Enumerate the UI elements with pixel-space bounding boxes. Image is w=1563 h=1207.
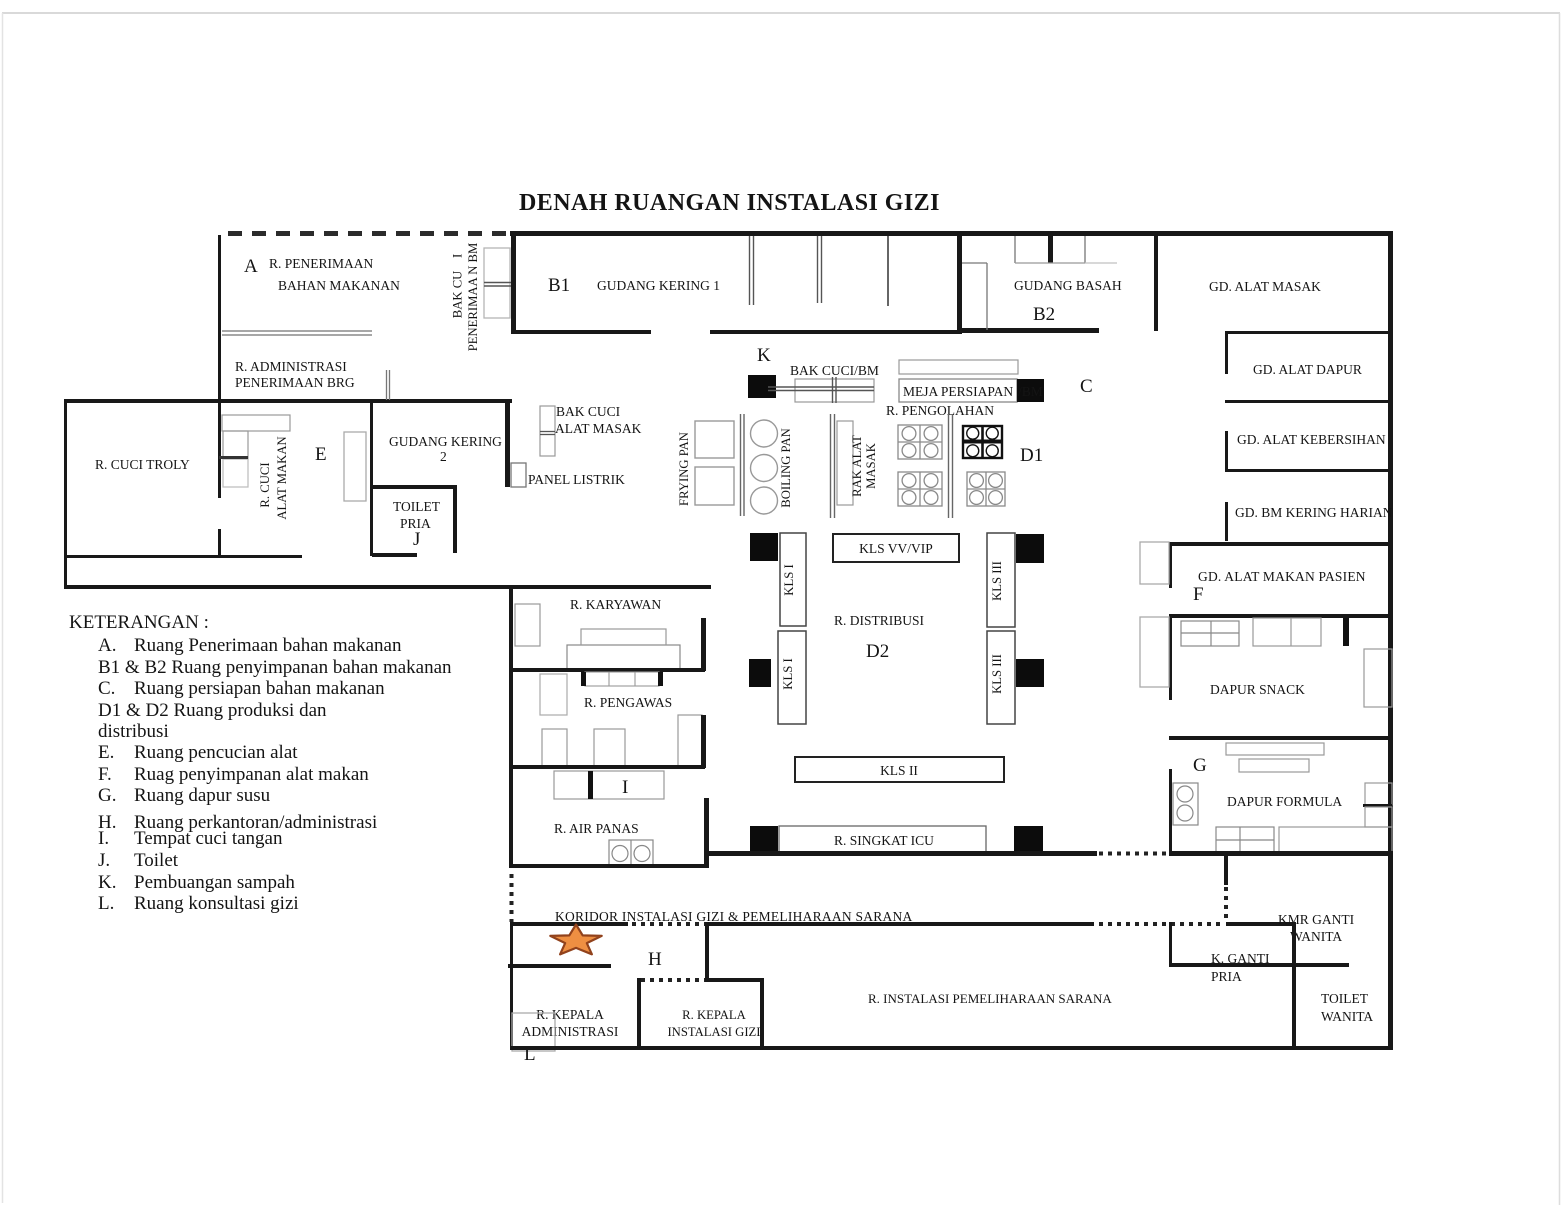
svg-text:WANITA: WANITA	[1321, 1009, 1373, 1024]
svg-text:DAPUR SNACK: DAPUR SNACK	[1210, 682, 1305, 697]
svg-text:D1: D1	[1020, 445, 1043, 466]
svg-text:KLS III: KLS III	[990, 654, 1004, 694]
svg-text:MASAK: MASAK	[864, 442, 878, 489]
svg-text:K.: K.	[98, 872, 116, 893]
svg-text:BAK CUCI/BM: BAK CUCI/BM	[790, 363, 879, 378]
svg-text:GUDANG KERING 1: GUDANG KERING 1	[597, 278, 720, 293]
svg-text:D2: D2	[866, 641, 889, 662]
svg-text:E: E	[315, 444, 327, 465]
svg-text:KMR GANTI: KMR GANTI	[1278, 912, 1355, 927]
svg-text:FRYING PAN: FRYING PAN	[677, 432, 691, 506]
svg-text:Ruang dapur susu: Ruang dapur susu	[134, 785, 271, 806]
svg-text:Ruang pencucian alat: Ruang pencucian alat	[134, 742, 298, 763]
svg-text:K. GANTI: K. GANTI	[1211, 951, 1270, 966]
svg-text:C.: C.	[98, 678, 115, 699]
svg-text:F: F	[1193, 584, 1204, 605]
svg-text:D1 & D2 Ruang produksi dan: D1 & D2 Ruang produksi dan	[98, 700, 327, 721]
svg-text:BOILING PAN: BOILING PAN	[779, 428, 793, 508]
svg-text:BAK CU I: BAK CU I	[451, 254, 465, 319]
svg-text:GD. ALAT KEBERSIHAN: GD. ALAT KEBERSIHAN	[1237, 432, 1386, 447]
svg-text:R. PENERIMAAN: R. PENERIMAAN	[269, 256, 374, 271]
svg-text:Tempat cuci tangan: Tempat cuci tangan	[134, 828, 283, 849]
svg-text:E.: E.	[98, 742, 114, 763]
svg-text:R. SINGKAT ICU: R. SINGKAT ICU	[834, 833, 934, 848]
svg-text:R. KEPALA: R. KEPALA	[536, 1007, 604, 1022]
svg-text:F.: F.	[98, 764, 112, 785]
svg-text:TOILET: TOILET	[393, 499, 441, 514]
svg-text:Ruang Penerimaan bahan makanan: Ruang Penerimaan bahan makanan	[134, 635, 402, 656]
svg-text:KLS VV/VIP: KLS VV/VIP	[859, 541, 933, 556]
svg-text:KETERANGAN :: KETERANGAN :	[69, 612, 209, 633]
svg-text:GUDANG KERING: GUDANG KERING	[389, 434, 502, 449]
svg-text:K: K	[757, 345, 771, 366]
svg-text:PRIA: PRIA	[1211, 969, 1242, 984]
svg-text:J.: J.	[98, 850, 110, 871]
svg-text:H: H	[648, 949, 662, 970]
svg-text:DENAH RUANGAN INSTALASI GIZI: DENAH RUANGAN INSTALASI GIZI	[519, 190, 940, 216]
svg-text:Ruang persiapan bahan makanan: Ruang persiapan bahan makanan	[134, 678, 385, 699]
svg-text:R. DISTRIBUSI: R. DISTRIBUSI	[834, 613, 925, 628]
svg-text:R. CUCI: R. CUCI	[258, 462, 272, 507]
svg-text:B2: B2	[1033, 304, 1055, 325]
svg-text:R. KARYAWAN: R. KARYAWAN	[570, 597, 661, 612]
svg-text:GD. ALAT MASAK: GD. ALAT MASAK	[1209, 279, 1321, 294]
svg-text:R. AIR PANAS: R. AIR PANAS	[554, 821, 639, 836]
svg-text:PANEL LISTRIK: PANEL LISTRIK	[528, 472, 625, 487]
svg-text:GD. ALAT MAKAN PASIEN: GD. ALAT MAKAN PASIEN	[1198, 569, 1366, 584]
svg-text:BAK CUCI: BAK CUCI	[556, 404, 621, 419]
svg-text:/BM: /BM	[1018, 384, 1043, 399]
svg-text:Toilet: Toilet	[134, 850, 179, 871]
svg-text:TOILET: TOILET	[1321, 991, 1369, 1006]
svg-text:G.: G.	[98, 785, 116, 806]
svg-text:ADMINISTRASI: ADMINISTRASI	[522, 1024, 619, 1039]
svg-text:distribusi: distribusi	[98, 721, 169, 742]
svg-text:R. PENGAWAS: R. PENGAWAS	[584, 695, 672, 710]
svg-text:ALAT MAKAN: ALAT MAKAN	[275, 436, 289, 519]
svg-text:B1 & B2 Ruang penyimpanan baha: B1 & B2 Ruang penyimpanan bahan makanan	[98, 657, 452, 678]
svg-text:C: C	[1080, 376, 1093, 397]
svg-text:ALAT MASAK: ALAT MASAK	[555, 421, 642, 436]
svg-text:L.: L.	[98, 893, 114, 914]
svg-text:WANITA: WANITA	[1290, 929, 1342, 944]
svg-text:PENERIMAAN BRG: PENERIMAAN BRG	[235, 375, 355, 390]
svg-text:A.: A.	[98, 635, 116, 656]
svg-text:GD. ALAT DAPUR: GD. ALAT DAPUR	[1253, 362, 1362, 377]
svg-text:Ruang konsultasi gizi: Ruang konsultasi gizi	[134, 893, 299, 914]
svg-text:I.: I.	[98, 828, 109, 849]
svg-text:KLS I: KLS I	[781, 658, 795, 689]
svg-text:GUDANG BASAH: GUDANG BASAH	[1014, 278, 1122, 293]
svg-text:INSTALASI GIZI: INSTALASI GIZI	[667, 1025, 760, 1039]
svg-text:KLS III: KLS III	[990, 561, 1004, 601]
svg-text:R. ADMINISTRASI: R. ADMINISTRASI	[235, 359, 347, 374]
svg-text:PENERIMAA N BM: PENERIMAA N BM	[466, 243, 480, 352]
svg-text:Pembuangan sampah: Pembuangan sampah	[134, 872, 295, 893]
svg-text:DAPUR FORMULA: DAPUR FORMULA	[1227, 794, 1342, 809]
svg-text:G: G	[1193, 755, 1207, 776]
svg-text:GD. BM KERING HARIAN: GD. BM KERING HARIAN	[1235, 505, 1393, 520]
svg-text:2: 2	[440, 449, 447, 464]
svg-text:KLS I: KLS I	[782, 564, 796, 595]
svg-text:R. INSTALASI PEMELIHARAAN SARA: R. INSTALASI PEMELIHARAAN SARANA	[868, 991, 1112, 1006]
svg-text:KLS II: KLS II	[880, 763, 918, 778]
svg-text:B1: B1	[548, 275, 570, 296]
svg-text:R. PENGOLAHAN: R. PENGOLAHAN	[886, 403, 994, 418]
svg-text:BAHAN MAKANAN: BAHAN MAKANAN	[278, 278, 400, 293]
svg-text:Ruag penyimpanan alat makan: Ruag penyimpanan alat makan	[134, 764, 369, 785]
svg-text:RAK ALAT: RAK ALAT	[850, 435, 864, 497]
svg-text:I: I	[622, 777, 628, 798]
svg-text:MEJA PERSIAPAN: MEJA PERSIAPAN	[903, 384, 1013, 399]
svg-text:KORIDOR INSTALASI GIZI & PEM: KORIDOR INSTALASI GIZI & PEMELIHARAAN SA…	[555, 909, 913, 924]
svg-text:R. CUCI TROLY: R. CUCI TROLY	[95, 457, 190, 472]
svg-text:A: A	[244, 256, 258, 277]
svg-text:J: J	[413, 529, 420, 550]
svg-text:R. KEPALA: R. KEPALA	[682, 1008, 747, 1022]
